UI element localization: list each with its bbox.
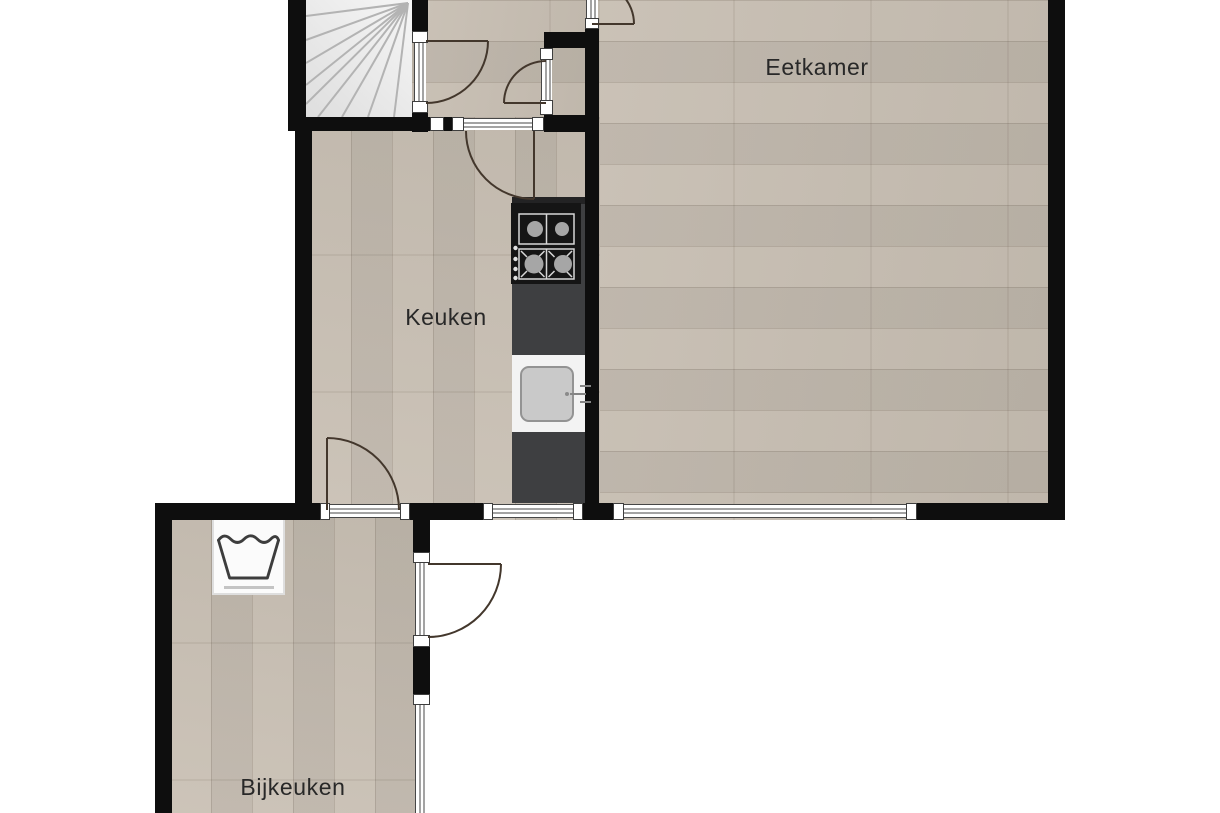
room-label-eetkamer: Eetkamer <box>707 54 927 81</box>
floorplan: Eetkamer Keuken Bijkeuken <box>0 0 1220 813</box>
door-swings-icon <box>0 0 1220 813</box>
room-label-bijkeuken: Bijkeuken <box>193 774 393 801</box>
room-label-keuken: Keuken <box>346 304 546 331</box>
faucet-icon <box>570 386 591 402</box>
